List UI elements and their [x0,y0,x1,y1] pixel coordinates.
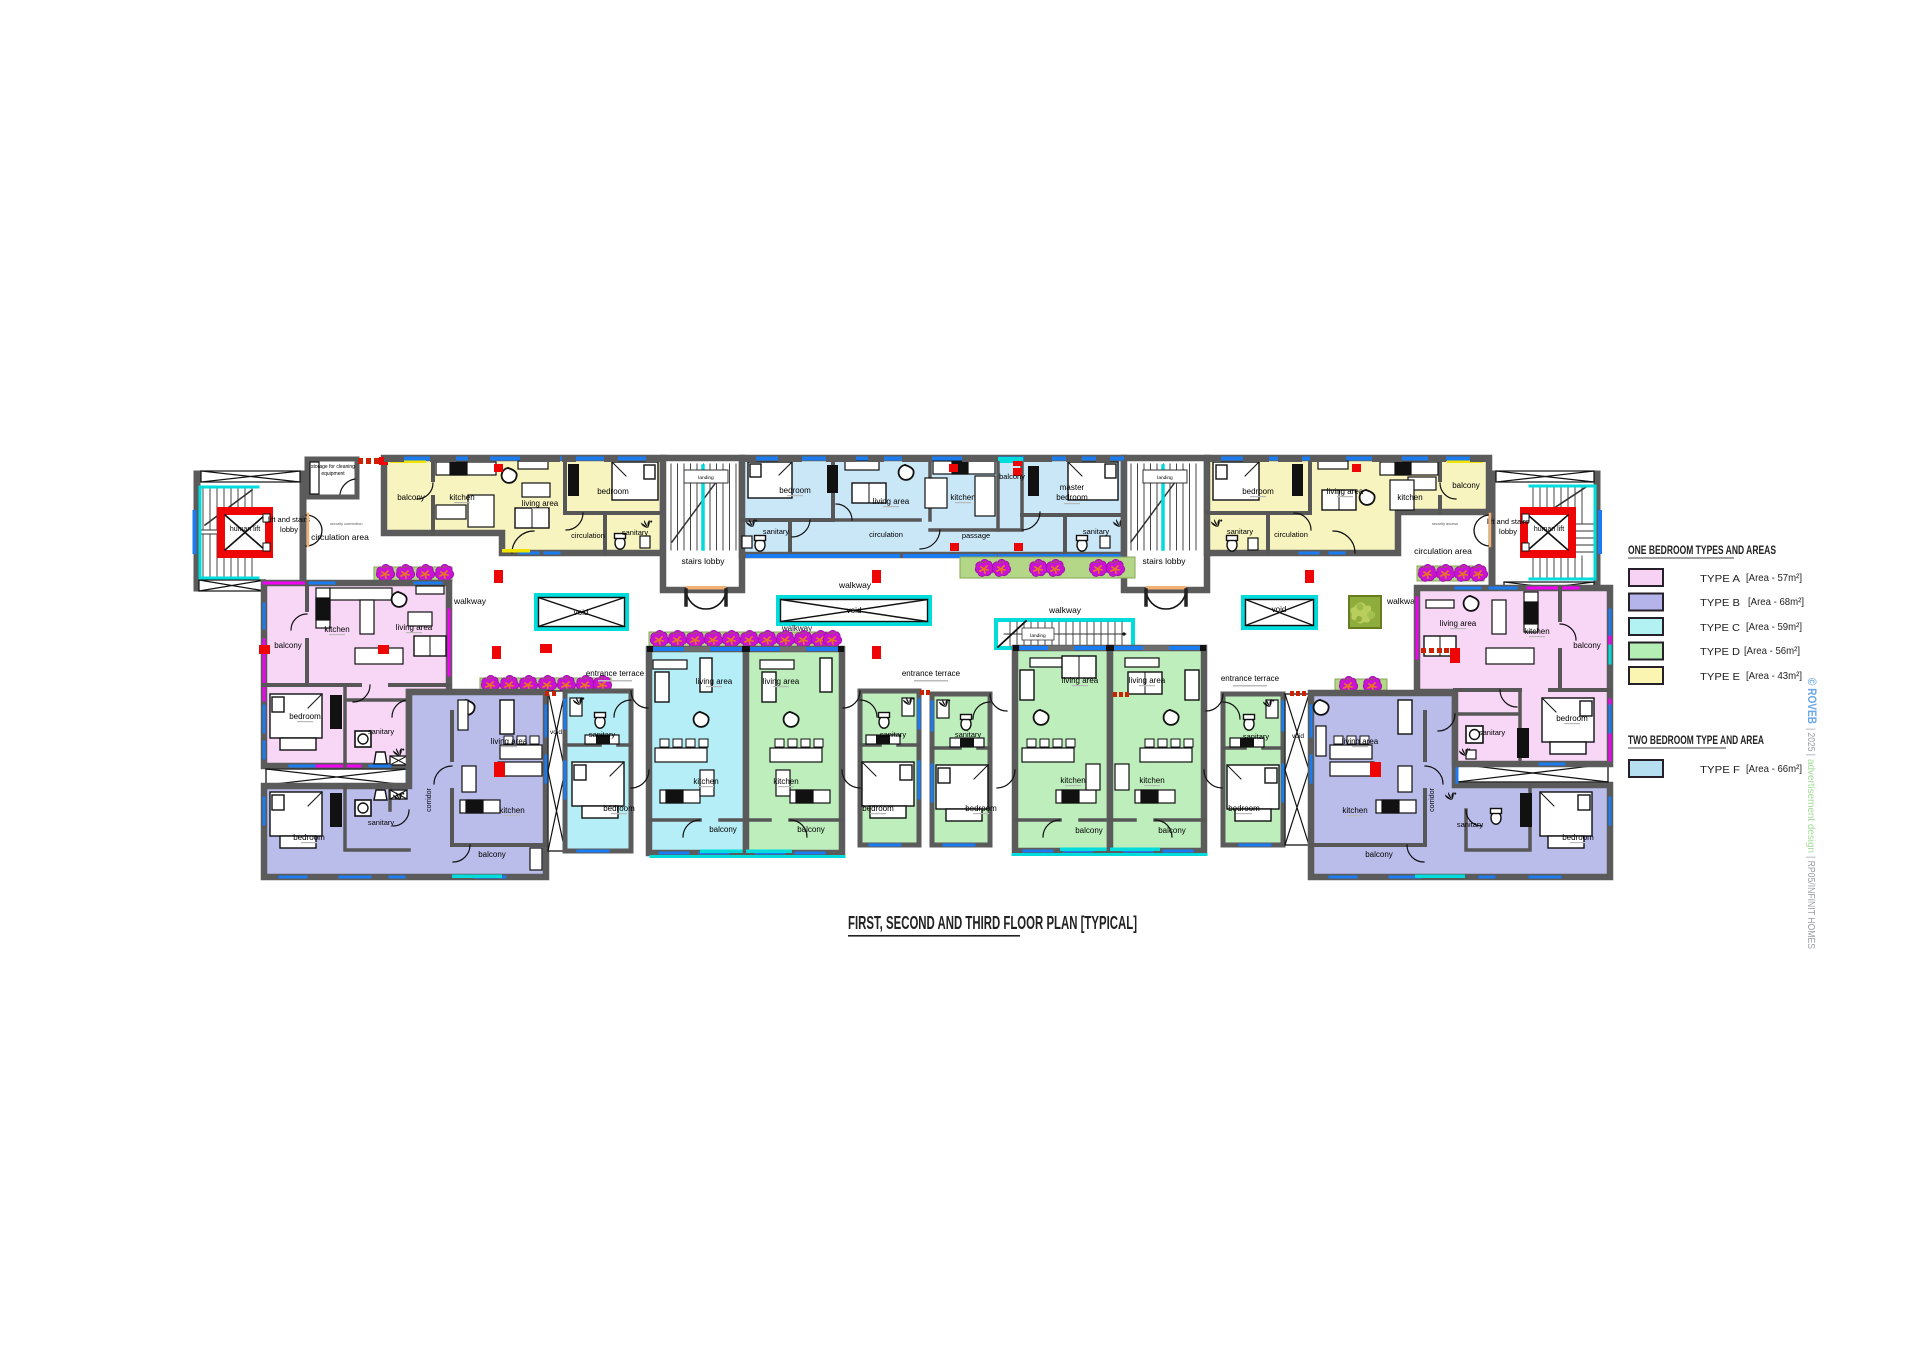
svg-text:living area: living area [396,623,433,632]
svg-text:| RP05/INFINIT HOMES: | RP05/INFINIT HOMES [1805,856,1817,949]
svg-text:security connection: security connection [330,522,363,526]
svg-text:ONE BEDROOM TYPES AND AREAS: ONE BEDROOM TYPES AND AREAS [1628,545,1776,557]
svg-text:balcony: balcony [478,850,506,859]
svg-text:circulation area: circulation area [311,532,369,542]
svg-text:void: void [574,608,589,617]
svg-text:bedroom: bedroom [1242,487,1274,496]
svg-text:balcony: balcony [999,472,1025,481]
svg-text:balcony: balcony [709,825,737,834]
svg-text:lobby: lobby [280,525,298,534]
svg-text:bedroom: bedroom [779,486,811,495]
svg-text:void: void [847,606,862,615]
svg-text:[Area - 56m²]: [Area - 56m²] [1744,645,1800,657]
svg-text:kitchen: kitchen [1342,806,1367,815]
svg-text:entrance terrace: entrance terrace [902,669,961,678]
svg-text:balcony: balcony [797,825,825,834]
svg-text:stairs lobby: stairs lobby [1143,556,1187,566]
svg-text:landing: landing [1030,633,1046,639]
svg-text:TYPE E: TYPE E [1700,671,1740,683]
svg-text:FIRST, SECOND AND THIRD FLOOR: FIRST, SECOND AND THIRD FLOOR PLAN [TYPI… [848,912,1137,933]
svg-text:living area: living area [763,677,800,686]
svg-text:equipment: equipment [321,471,345,477]
svg-text:bedroom: bedroom [862,804,894,813]
svg-text:circulation area: circulation area [1414,546,1472,556]
svg-text:bedroom: bedroom [1056,493,1088,502]
svg-text:master: master [1060,483,1085,492]
svg-text:living area: living area [1440,619,1477,628]
svg-text:kitchen: kitchen [1060,776,1085,785]
svg-text:landing: landing [698,475,714,481]
svg-text:living area: living area [1342,737,1379,746]
svg-text:lift and stairs: lift and stairs [1487,517,1529,526]
svg-text:TYPE D: TYPE D [1700,646,1740,658]
svg-text:TYPE F: TYPE F [1700,764,1740,776]
svg-text:advertisement design: advertisement design [1805,759,1817,853]
svg-text:kitchen: kitchen [950,493,975,502]
svg-text:living area: living area [1327,487,1364,496]
svg-text:entrance terrace: entrance terrace [586,669,645,678]
svg-text:[Area - 68m²]: [Area - 68m²] [1748,596,1804,608]
svg-text:storage for cleaning: storage for cleaning [311,464,355,470]
svg-text:circulation: circulation [869,530,903,539]
svg-text:corridor: corridor [426,787,433,811]
svg-text:sanitary: sanitary [763,527,790,536]
svg-text:living area: living area [696,677,733,686]
svg-text:sanitary: sanitary [368,818,395,827]
svg-text:[Area - 43m²]: [Area - 43m²] [1746,670,1802,682]
svg-text:landing: landing [1157,475,1173,481]
svg-text:balcony: balcony [274,641,302,650]
svg-text:sanitary: sanitary [622,528,649,537]
svg-text:corridor: corridor [1429,787,1436,811]
svg-text:bedroom: bedroom [965,804,997,813]
svg-text:passage: passage [962,531,990,540]
svg-text:bedroom: bedroom [289,712,321,721]
svg-text:© ROVEB: © ROVEB [1805,678,1817,724]
svg-text:circulation: circulation [571,531,605,540]
svg-text:human lift: human lift [230,526,260,533]
svg-text:kitchen: kitchen [449,493,474,502]
svg-text:[Area - 59m²]: [Area - 59m²] [1746,621,1802,633]
svg-text:living area: living area [491,737,528,746]
svg-text:sanitary: sanitary [955,730,982,739]
svg-text:kitchen: kitchen [324,625,349,634]
svg-text:human lift: human lift [1534,526,1564,533]
svg-text:kitchen: kitchen [693,777,718,786]
svg-text:bedroom: bedroom [293,833,325,842]
svg-text:sanitary: sanitary [1479,728,1506,737]
svg-text:walkway: walkway [453,596,487,606]
svg-text:balcony: balcony [1573,641,1601,650]
svg-text:sanitary: sanitary [368,727,395,736]
svg-text:kitchen: kitchen [773,777,798,786]
svg-text:bedroom: bedroom [597,487,629,496]
svg-text:balcony: balcony [1158,826,1186,835]
svg-text:lobby: lobby [1499,527,1517,536]
svg-text:walkway: walkway [1048,605,1082,615]
svg-text:sanitary: sanitary [1457,820,1484,829]
svg-text:stairs lobby: stairs lobby [682,556,726,566]
svg-text:circulation: circulation [1274,530,1308,539]
svg-text:sanitary: sanitary [1083,527,1110,536]
svg-text:balcony: balcony [1365,850,1393,859]
svg-text:sanitary: sanitary [880,730,907,739]
svg-text:kitchen: kitchen [1524,627,1549,636]
svg-text:sanitary: sanitary [1243,732,1270,741]
svg-text:bedroom: bedroom [603,804,635,813]
svg-text:void: void [1292,733,1304,740]
svg-text:balcony: balcony [1452,481,1480,490]
svg-text:| 2025 |: | 2025 | [1805,728,1817,756]
svg-text:entrance terrace: entrance terrace [1221,674,1280,683]
svg-text:TWO BEDROOM TYPE AND AREA: TWO BEDROOM TYPE AND AREA [1628,735,1764,747]
svg-text:TYPE A: TYPE A [1700,573,1740,585]
svg-text:living area: living area [873,497,910,506]
svg-text:bedroom: bedroom [1562,833,1594,842]
svg-text:living area: living area [1062,676,1099,685]
svg-text:walkway: walkway [838,580,872,590]
svg-text:living area: living area [522,499,559,508]
svg-text:TYPE C: TYPE C [1700,622,1740,634]
svg-text:bedroom: bedroom [1228,804,1260,813]
svg-text:sanitary: sanitary [589,730,616,739]
svg-text:kitchen: kitchen [1397,493,1422,502]
svg-text:[Area - 57m²]: [Area - 57m²] [1746,572,1802,584]
svg-text:void: void [1272,605,1287,614]
svg-text:TYPE B: TYPE B [1700,597,1740,609]
svg-text:lift and stairs: lift and stairs [268,515,310,524]
svg-text:kitchen: kitchen [1139,776,1164,785]
svg-text:balcony: balcony [1075,826,1103,835]
svg-text:void: void [550,729,562,736]
svg-text:living area: living area [1129,676,1166,685]
svg-text:security access: security access [1432,522,1458,526]
svg-text:balcony: balcony [397,493,425,502]
svg-text:sanitary: sanitary [1227,527,1254,536]
svg-text:bedroom: bedroom [1556,714,1588,723]
svg-text:[Area - 66m²]: [Area - 66m²] [1746,763,1802,775]
svg-text:kitchen: kitchen [499,806,524,815]
